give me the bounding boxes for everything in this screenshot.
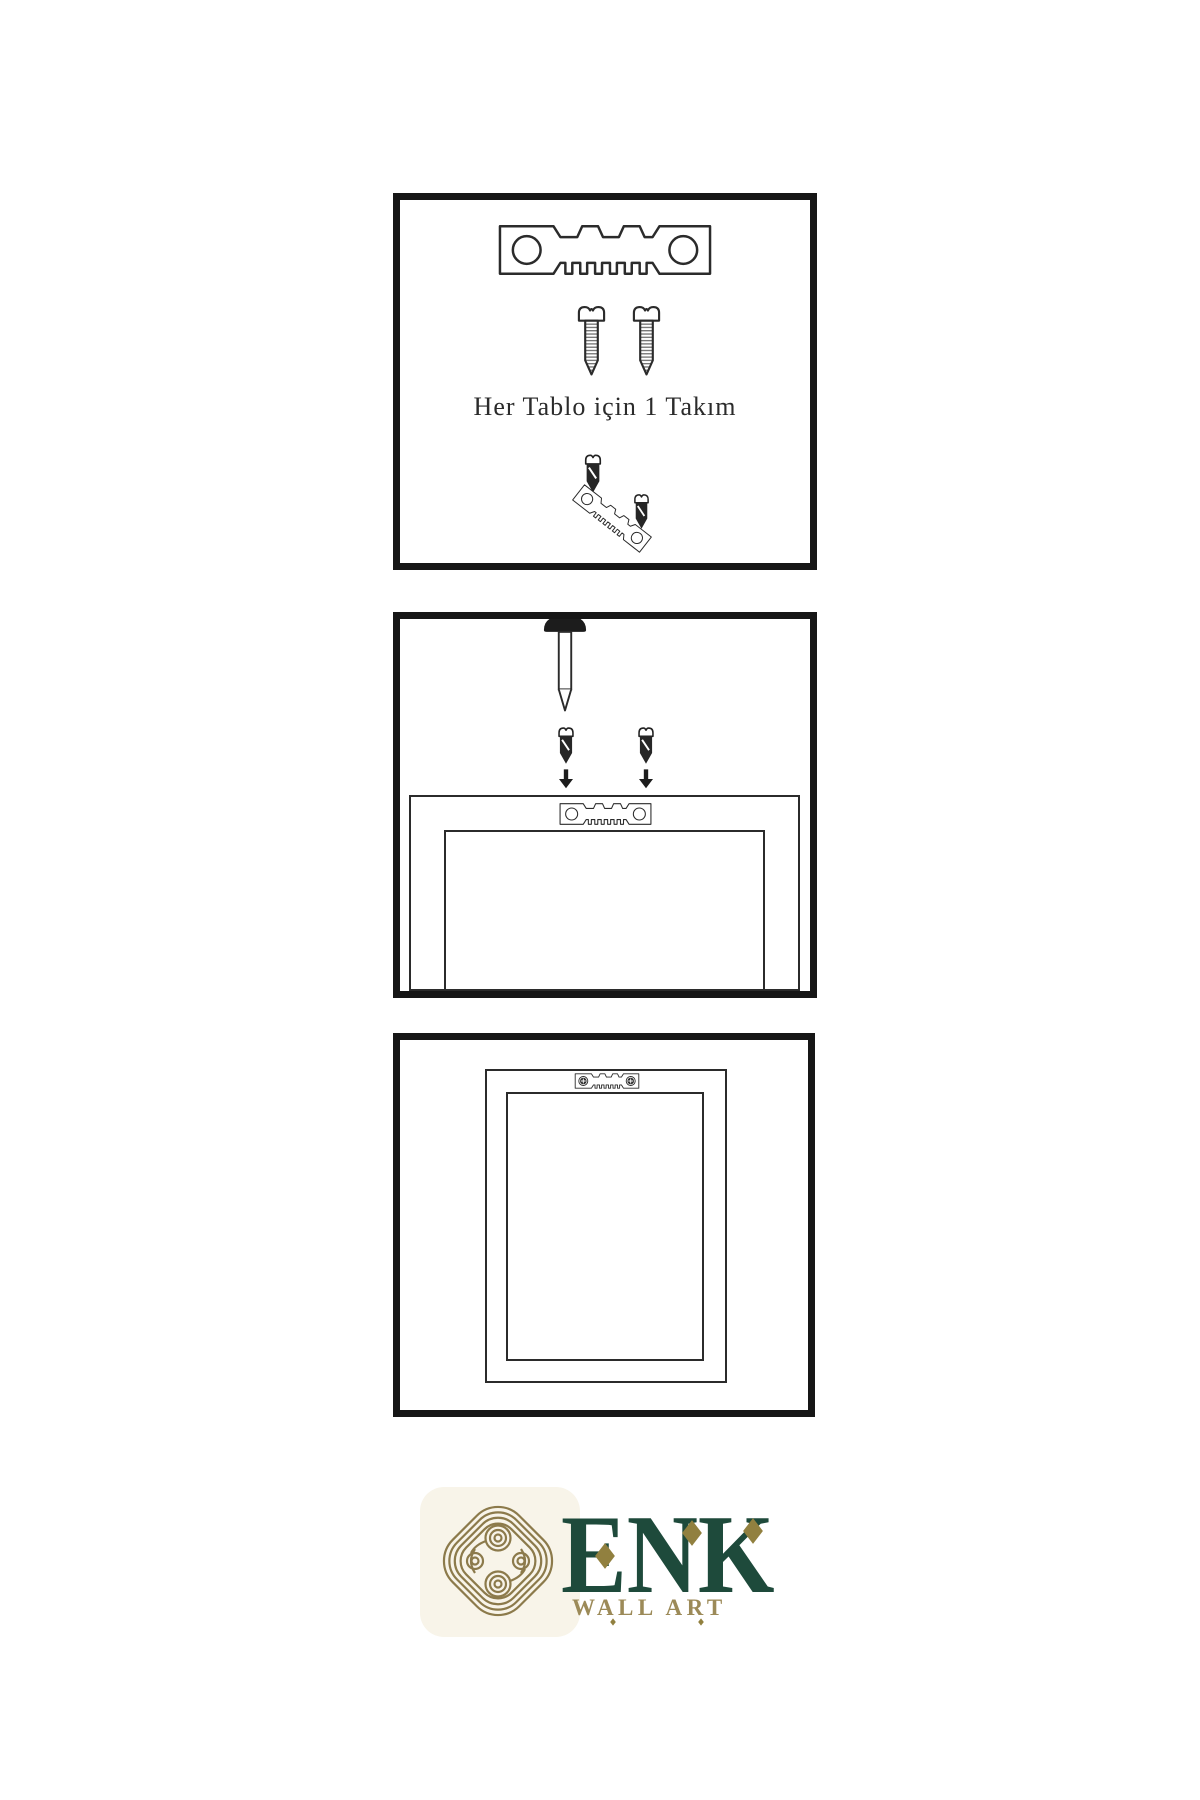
screw-icon	[631, 303, 662, 379]
kit-caption: Her Tablo için 1 Takım	[400, 391, 810, 423]
arrow-down-icon	[639, 769, 653, 789]
step-3-panel	[393, 1033, 815, 1417]
frame-inner-outline	[506, 1092, 704, 1361]
knot-icon	[438, 1500, 558, 1622]
arrow-down-icon	[559, 769, 573, 789]
instruction-sheet: Her Tablo için 1 Takım ENK WALL ART	[0, 0, 1200, 1800]
dark-screw-icon	[632, 492, 651, 530]
wall-nail-icon	[542, 612, 588, 715]
brand-subtitle: WALL ART	[572, 1595, 727, 1621]
sawtooth-hanger-icon	[553, 802, 658, 826]
step-1-panel: Her Tablo için 1 Takım	[393, 193, 817, 570]
sawtooth-hanger-icon	[496, 222, 714, 278]
dark-screw-icon	[636, 725, 656, 765]
sawtooth-hanger-screwed-icon	[574, 1072, 640, 1090]
frame-inner-outline	[444, 830, 765, 991]
screw-icon	[576, 303, 607, 379]
step-2-panel	[393, 612, 817, 998]
dark-screw-icon	[556, 725, 576, 765]
